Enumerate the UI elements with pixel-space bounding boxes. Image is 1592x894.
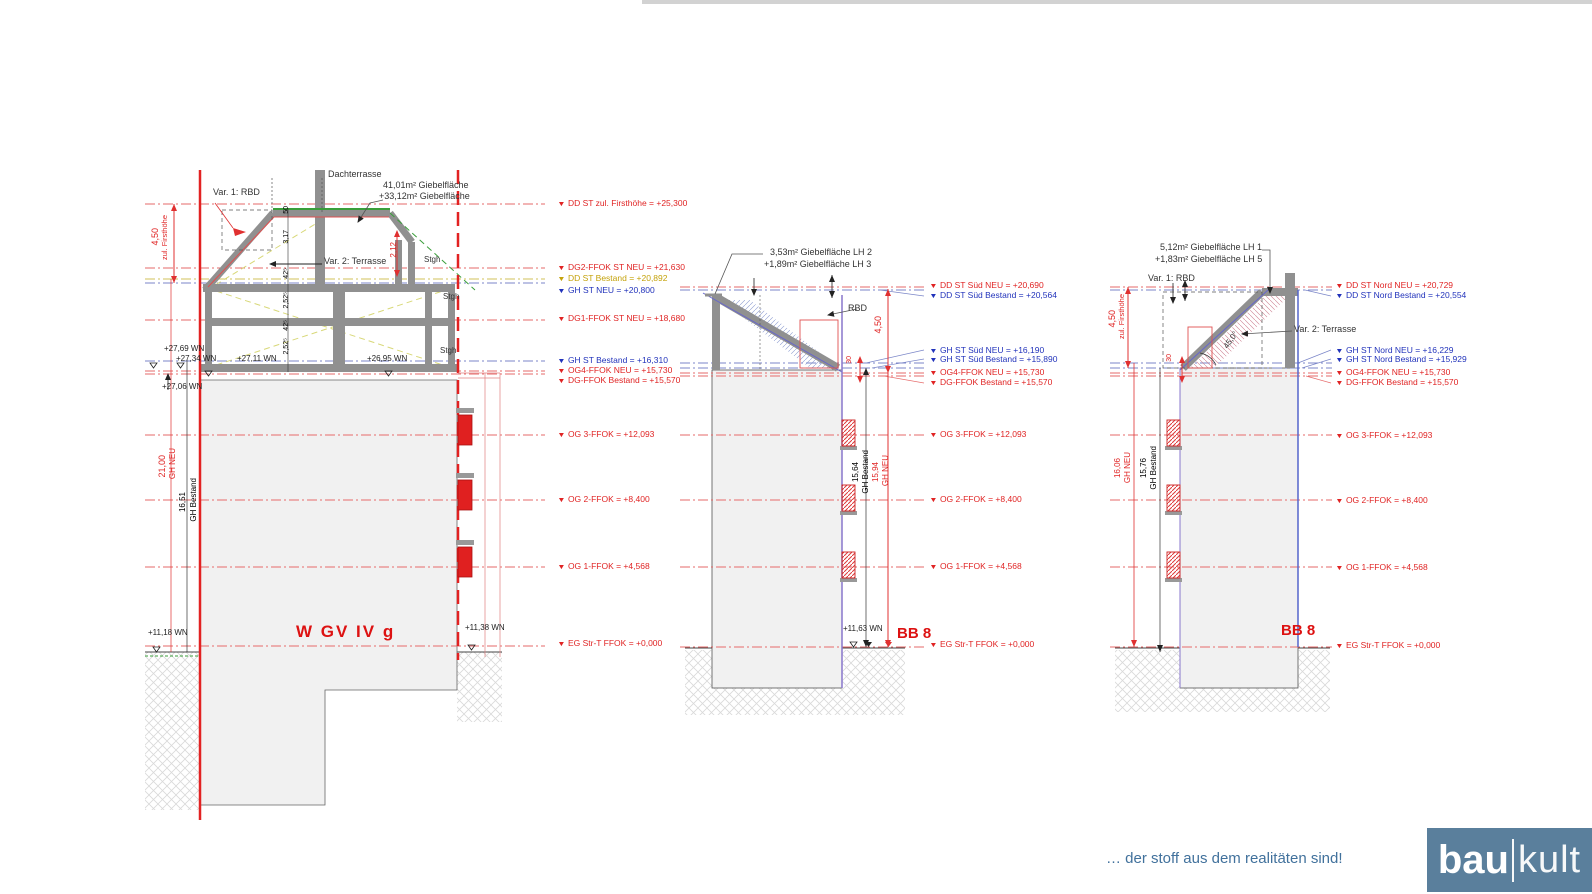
dim-chain-value: 42⁵ [283, 320, 290, 331]
dim-gh-bestand-value: 15,76 [1140, 458, 1148, 478]
giebelflaeche-label-2: +33,12m² Giebelfläche [379, 192, 470, 202]
level-marker-icon: ▼ [557, 265, 565, 272]
level-label: ▼EG Str-T FFOK = +0,000 [1336, 641, 1440, 650]
dim-gh-bestand-value: 16,51 [179, 492, 187, 512]
level-label: ▼EG Str-T FFOK = +0,000 [558, 639, 662, 648]
level-marker-icon: ▼ [1335, 565, 1343, 572]
dim-firsthoehe-label: zul. Firsthöhe [161, 215, 169, 260]
level-marker-icon: ▼ [557, 564, 565, 571]
level-label: ▼DD ST zul. Firsthöhe = +25,300 [558, 199, 687, 208]
dim-chain-value: 2,52⁵ [283, 292, 290, 309]
dim-gh-neu-value: 15,94 [872, 462, 880, 482]
level-label: ▼OG4-FFOK NEU = +15,730 [558, 366, 672, 375]
var2-terrasse-label: Var. 2: Terrasse [1294, 325, 1356, 335]
level-marker-icon: ▼ [1335, 348, 1343, 355]
level-marker-icon: ▼ [929, 380, 937, 387]
level-marker-icon: ▼ [1335, 283, 1343, 290]
section-drawing-nord [1100, 235, 1340, 715]
level-label: ▼OG 2-FFOK = +8,400 [1336, 496, 1428, 505]
level-label: ▼OG4-FFOK NEU = +15,730 [930, 368, 1044, 377]
giebelflaeche-label-2: +1,89m² Giebelfläche LH 3 [764, 260, 871, 270]
level-marker-icon: ▼ [1335, 293, 1343, 300]
level-marker-icon: ▼ [929, 497, 937, 504]
level-marker-icon: ▼ [557, 432, 565, 439]
dim-chain-value: 2,52⁵ [283, 338, 290, 355]
level-label: ▼OG 2-FFOK = +8,400 [930, 495, 1022, 504]
level-label: ▼DD ST Süd NEU = +20,690 [930, 281, 1044, 290]
dim-212: 2,12 [390, 242, 398, 258]
wn-elevation-label: +27,11 WN [237, 354, 277, 363]
level-label: ▼OG 1-FFOK = +4,568 [930, 562, 1022, 571]
dim-gh-neu-value: 16,06 [1114, 458, 1122, 478]
level-marker-icon: ▼ [929, 642, 937, 649]
section-title-wgviv: W GV IV g [296, 622, 395, 642]
level-label: ▼OG 3-FFOK = +12,093 [558, 430, 654, 439]
level-label: ▼DD ST Süd Bestand = +20,564 [930, 291, 1057, 300]
level-label: ▼GH ST Bestand = +16,310 [558, 356, 668, 365]
dim-30: 30 [846, 356, 853, 364]
level-label: ▼DD ST Bestand = +20,892 [558, 274, 668, 283]
level-marker-icon: ▼ [929, 370, 937, 377]
level-label: ▼OG 1-FFOK = +4,568 [558, 562, 650, 571]
var1-rbd-label: Var. 1: RBD [213, 188, 260, 198]
dachterrasse-label: Dachterrasse [328, 170, 382, 180]
wn-elevation-label: +27,34 WN [176, 354, 216, 363]
section-drawing-sued [680, 240, 930, 720]
level-marker-icon: ▼ [557, 641, 565, 648]
level-marker-icon: ▼ [929, 432, 937, 439]
dim-gh-neu-label: GH NEU [882, 455, 890, 486]
stgh-label: Stgh [424, 256, 440, 265]
dim-chain-value: 3,17 [283, 230, 290, 244]
dim-450: 4,50 [874, 316, 883, 334]
level-label: ▼OG 3-FFOK = +12,093 [1336, 431, 1432, 440]
level-marker-icon: ▼ [929, 357, 937, 364]
level-marker-icon: ▼ [1335, 357, 1343, 364]
level-marker-icon: ▼ [557, 288, 565, 295]
dim-firsthoehe-label: zul. Firsthöhe [1118, 294, 1126, 339]
level-label: ▼DD ST Nord NEU = +20,729 [1336, 281, 1453, 290]
baukult-logo: baukult [1427, 828, 1592, 892]
logo-text-kult: kult [1512, 839, 1581, 882]
level-marker-icon: ▼ [929, 293, 937, 300]
level-label: ▼DG1-FFOK ST NEU = +18,680 [558, 314, 685, 323]
dim-chain-value: 50 [283, 206, 290, 214]
level-label: ▼OG 3-FFOK = +12,093 [930, 430, 1026, 439]
level-marker-icon: ▼ [557, 358, 565, 365]
wn-elevation-label: +26,95 WN [367, 354, 407, 363]
level-marker-icon: ▼ [929, 348, 937, 355]
level-label: ▼EG Str-T FFOK = +0,000 [930, 640, 1034, 649]
section-title-bb8: BB 8 [897, 625, 931, 642]
dim-chain-value: 42⁵ [283, 268, 290, 279]
level-label: ▼DG2-FFOK ST NEU = +21,630 [558, 263, 685, 272]
level-marker-icon: ▼ [557, 316, 565, 323]
level-label: ▼DG-FFOK Bestand = +15,570 [930, 378, 1052, 387]
dim-450: 4,50 [1108, 310, 1117, 328]
dim-gh-bestand-value: 15,64 [852, 462, 860, 482]
dim-gh-bestand-label: GH Bestand [1150, 446, 1158, 490]
level-label: ▼OG 2-FFOK = +8,400 [558, 495, 650, 504]
level-marker-icon: ▼ [1335, 380, 1343, 387]
wn-elevation-label: +27,06 WN [162, 382, 202, 391]
level-marker-icon: ▼ [1335, 643, 1343, 650]
company-tagline: … der stoff aus dem realitäten sind! [1106, 850, 1343, 867]
wn-elevation-label: +11,18 WN [148, 628, 188, 637]
level-label: ▼DD ST Nord Bestand = +20,554 [1336, 291, 1466, 300]
dim-gh-bestand-label: GH Bestand [862, 450, 870, 494]
level-label: ▼GH ST Nord Bestand = +15,929 [1336, 355, 1467, 364]
level-label: ▼DG-FFOK Bestand = +15,570 [1336, 378, 1458, 387]
level-marker-icon: ▼ [1335, 498, 1343, 505]
giebelflaeche-label-2: +1,83m² Giebelfläche LH 5 [1155, 255, 1262, 265]
level-marker-icon: ▼ [929, 564, 937, 571]
rbd-label: RBD [848, 304, 867, 314]
plan-sheet: Var. 1: RBD Dachterrasse 41,01m² Giebelf… [0, 0, 1592, 894]
giebelflaeche-label-1: 5,12m² Giebelfläche LH 1 [1160, 243, 1262, 253]
giebelflaeche-label-1: 3,53m² Giebelfläche LH 2 [770, 248, 872, 258]
giebelflaeche-label-1: 41,01m² Giebelfläche [383, 181, 469, 191]
level-label: ▼OG 1-FFOK = +4,568 [1336, 563, 1428, 572]
level-marker-icon: ▼ [557, 368, 565, 375]
top-divider-bar [642, 0, 1592, 4]
level-marker-icon: ▼ [1335, 433, 1343, 440]
wn-elevation-label: +27,69 WN [164, 344, 204, 353]
stgh-label: Stgh [443, 293, 459, 302]
dim-gh-bestand-label: GH Bestand [190, 478, 198, 522]
dim-gh-neu-value: 21,00 [158, 455, 167, 478]
level-marker-icon: ▼ [557, 201, 565, 208]
var2-terrasse-label: Var. 2: Terrasse [324, 257, 386, 267]
level-marker-icon: ▼ [557, 497, 565, 504]
var1-rbd-label: Var. 1: RBD [1148, 274, 1195, 284]
stgh-label: Stgh [440, 347, 456, 356]
level-marker-icon: ▼ [1335, 370, 1343, 377]
level-marker-icon: ▼ [557, 378, 565, 385]
level-label: ▼DG-FFOK Bestand = +15,570 [558, 376, 680, 385]
level-marker-icon: ▼ [929, 283, 937, 290]
dim-firsthoehe-value: 4,50 [151, 228, 160, 246]
section-title-bb8: BB 8 [1281, 622, 1315, 639]
logo-text-bau: bau [1438, 838, 1509, 883]
dim-gh-neu-label: GH NEU [169, 448, 177, 479]
level-label: ▼OG4-FFOK NEU = +15,730 [1336, 368, 1450, 377]
level-label: ▼GH ST NEU = +20,800 [558, 286, 655, 295]
dim-gh-neu-label: GH NEU [1124, 452, 1132, 483]
wn-elevation-label: +11,63 WN [843, 624, 883, 633]
wn-elevation-label: +11,38 WN [465, 623, 505, 632]
level-marker-icon: ▼ [557, 276, 565, 283]
level-label: ▼GH ST Süd Bestand = +15,890 [930, 355, 1057, 364]
dim-30: 30 [1166, 354, 1173, 362]
